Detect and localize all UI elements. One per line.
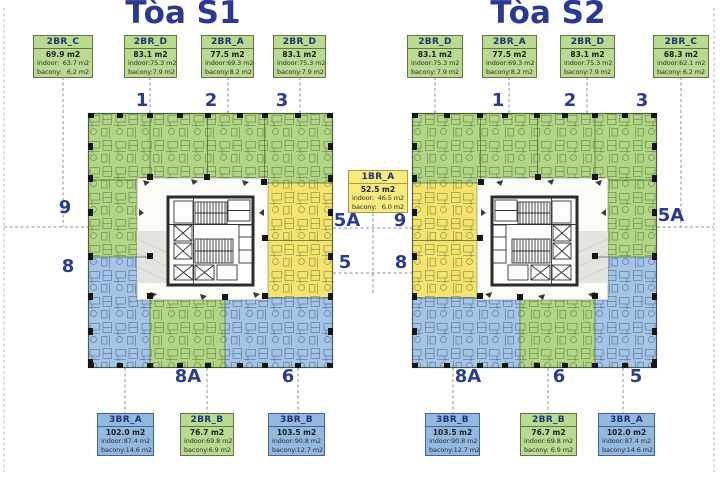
indoor-label: indoor: (657, 59, 679, 68)
unit-total-area: 76.7 m2 (521, 429, 576, 437)
unit-code: 2BR_A (202, 36, 253, 49)
unit-total-area: 68.3 m2 (654, 51, 708, 59)
indoor-value: 87.4 m2 (124, 437, 150, 446)
page-background: Tòa S1 Tòa S2 1 2 3 9 8 5A 5 8A 6 1 2 3 … (0, 0, 720, 480)
balcony-value: 6.9 m2 (551, 446, 573, 455)
unit-number: 2 (205, 92, 218, 110)
unit-total-area: 77.5 m2 (483, 51, 536, 59)
indoor-value: 62.1 m2 (679, 59, 705, 68)
unit-card: 3BR_B 103.5 m2 indoor:90.8 m2 bacony:12.… (268, 413, 325, 456)
unit-number: 5A (658, 207, 684, 225)
unit-code: 2BR_C (34, 36, 92, 49)
indoor-label: indoor: (429, 437, 451, 446)
indoor-label: indoor: (602, 437, 624, 446)
balcony-value: 12.7 m2 (454, 446, 480, 455)
unit-total-area: 83.1 m2 (274, 51, 325, 59)
unit-number: 5 (630, 368, 643, 386)
unit-number: 8 (62, 258, 75, 276)
indoor-value: 90.8 m2 (295, 437, 321, 446)
unit-code: 2BR_D (561, 36, 614, 49)
indoor-value: 69.8 m2 (547, 437, 573, 446)
unit-code: 2BR_D (274, 36, 325, 49)
balcony-value: 12.7 m2 (297, 446, 323, 455)
unit-total-area: 77.5 m2 (202, 51, 253, 59)
indoor-label: indoor: (272, 437, 294, 446)
balcony-value: 6.2 m2 (67, 68, 89, 77)
unit-total-area: 103.5 m2 (269, 429, 324, 437)
balcony-label: bacony: (486, 68, 511, 77)
unit-code: 2BR_A (483, 36, 536, 49)
unit-card: 2BR_B 76.7 m2 indoor:69.8 m2 bacony:6.9 … (520, 413, 577, 456)
balcony-label: bacony: (352, 203, 377, 212)
unit-number: 1 (136, 92, 149, 110)
unit-total-area: 103.5 m2 (426, 429, 479, 437)
unit-card: 2BR_A 77.5 m2 indoor:69.3 m2 bacony:8.2 … (482, 35, 537, 78)
unit-total-area: 69.9 m2 (34, 51, 92, 59)
unit-card: 3BR_A 102.0 m2 indoor:87.4 m2 bacony:14.… (598, 413, 655, 456)
balcony-value: 14.6 m2 (627, 446, 653, 455)
tower-s2-title: Tòa S2 (490, 0, 605, 29)
unit-card: 2BR_D 83.1 m2 indoor:75.3 m2 bacony:7.9 … (124, 35, 177, 78)
unit-card: 2BR_D 83.1 m2 indoor:75.3 m2 bacony:7.9 … (560, 35, 615, 78)
unit-total-area: 83.1 m2 (561, 51, 614, 59)
indoor-value: 63.7 m2 (63, 59, 89, 68)
unit-number: 3 (276, 92, 289, 110)
balcony-value: 7.9 m2 (302, 68, 324, 77)
unit-number: 9 (394, 212, 407, 230)
balcony-value: 8.2 m2 (511, 68, 533, 77)
indoor-label: indoor: (37, 59, 59, 68)
indoor-value: 87.4 m2 (625, 437, 651, 446)
indoor-label: indoor: (277, 59, 299, 68)
unit-number: 6 (282, 368, 295, 386)
indoor-value: 69.3 m2 (227, 59, 253, 68)
unit-code: 2BR_C (654, 36, 708, 49)
unit-number: 3 (636, 92, 649, 110)
unit-total-area: 83.1 m2 (125, 51, 176, 59)
balcony-value: 14.6 m2 (126, 446, 152, 455)
balcony-label: bacony: (101, 446, 126, 455)
unit-number: 6 (553, 368, 566, 386)
balcony-label: bacony: (184, 446, 209, 455)
unit-card: 2BR_D 83.1 m2 indoor:75.3 m2 bacony:7.9 … (407, 35, 463, 78)
unit-card: 2BR_C 68.3 m2 indoor:62.1 m2 bacony:6.2 … (653, 35, 709, 78)
indoor-value: 75.3 m2 (433, 59, 459, 68)
floorplan-s2 (412, 113, 657, 368)
unit-card: 2BR_D 83.1 m2 indoor:75.3 m2 bacony:7.9 … (273, 35, 326, 78)
indoor-label: indoor: (411, 59, 433, 68)
unit-card: 2BR_C 69.9 m2 indoor:63.7 m2 bacony:6.2 … (33, 35, 93, 78)
unit-code: 3BR_B (269, 414, 324, 427)
unit-number: 8A (455, 368, 481, 386)
unit-number: 5 (339, 254, 352, 272)
indoor-label: indoor: (524, 437, 546, 446)
indoor-value: 75.3 m2 (586, 59, 612, 68)
balcony-value: 6.0 m2 (382, 203, 404, 212)
indoor-value: 75.3 m2 (299, 59, 325, 68)
unit-code: 2BR_D (408, 36, 462, 49)
unit-total-area: 102.0 m2 (98, 429, 153, 437)
balcony-label: bacony: (205, 68, 230, 77)
balcony-label: bacony: (524, 446, 549, 455)
tower-s1-title: Tòa S1 (125, 0, 240, 29)
unit-number: 1 (492, 92, 505, 110)
balcony-label: bacony: (564, 68, 589, 77)
unit-code: 3BR_B (426, 414, 479, 427)
indoor-label: indoor: (128, 59, 150, 68)
unit-code: 2BR_D (125, 36, 176, 49)
unit-number: 2 (564, 92, 577, 110)
unit-card: 2BR_B 76.7 m2 indoor:69.8 m2 bacony:6.9 … (180, 413, 234, 456)
indoor-label: indoor: (101, 437, 123, 446)
unit-number: 5A (334, 212, 360, 230)
indoor-value: 46.5 m2 (378, 194, 404, 203)
unit-code: 3BR_A (599, 414, 654, 427)
indoor-label: indoor: (352, 194, 374, 203)
unit-code: 2BR_B (181, 414, 233, 427)
unit-number: 8 (395, 254, 408, 272)
balcony-label: bacony: (657, 68, 682, 77)
balcony-label: bacony: (37, 68, 62, 77)
balcony-label: bacony: (128, 68, 153, 77)
indoor-label: indoor: (486, 59, 508, 68)
balcony-value: 7.9 m2 (437, 68, 459, 77)
balcony-label: bacony: (602, 446, 627, 455)
unit-card: 1BR_A 52.5 m2 indoor:46.5 m2 bacony:6.0 … (348, 170, 408, 213)
unit-number: 9 (59, 199, 72, 217)
balcony-label: bacony: (277, 68, 302, 77)
unit-total-area: 52.5 m2 (349, 186, 407, 194)
indoor-label: indoor: (564, 59, 586, 68)
balcony-value: 7.9 m2 (153, 68, 175, 77)
floorplan-s1 (88, 113, 333, 368)
unit-total-area: 83.1 m2 (408, 51, 462, 59)
indoor-value: 90.8 m2 (451, 437, 477, 446)
indoor-value: 69.8 m2 (206, 437, 232, 446)
balcony-value: 8.2 m2 (230, 68, 252, 77)
balcony-value: 7.9 m2 (589, 68, 611, 77)
balcony-value: 6.9 m2 (209, 446, 231, 455)
balcony-label: bacony: (429, 446, 454, 455)
indoor-label: indoor: (184, 437, 206, 446)
unit-code: 3BR_A (98, 414, 153, 427)
unit-code: 1BR_A (349, 171, 407, 184)
unit-total-area: 76.7 m2 (181, 429, 233, 437)
balcony-label: bacony: (411, 68, 436, 77)
indoor-value: 69.3 m2 (508, 59, 534, 68)
unit-card: 3BR_B 103.5 m2 indoor:90.8 m2 bacony:12.… (425, 413, 480, 456)
unit-card: 2BR_A 77.5 m2 indoor:69.3 m2 bacony:8.2 … (201, 35, 254, 78)
unit-number: 8A (175, 368, 201, 386)
unit-code: 2BR_B (521, 414, 576, 427)
balcony-value: 6.2 m2 (683, 68, 705, 77)
unit-card: 3BR_A 102.0 m2 indoor:87.4 m2 bacony:14.… (97, 413, 154, 456)
unit-total-area: 102.0 m2 (599, 429, 654, 437)
balcony-label: bacony: (272, 446, 297, 455)
indoor-label: indoor: (205, 59, 227, 68)
indoor-value: 75.3 m2 (150, 59, 176, 68)
